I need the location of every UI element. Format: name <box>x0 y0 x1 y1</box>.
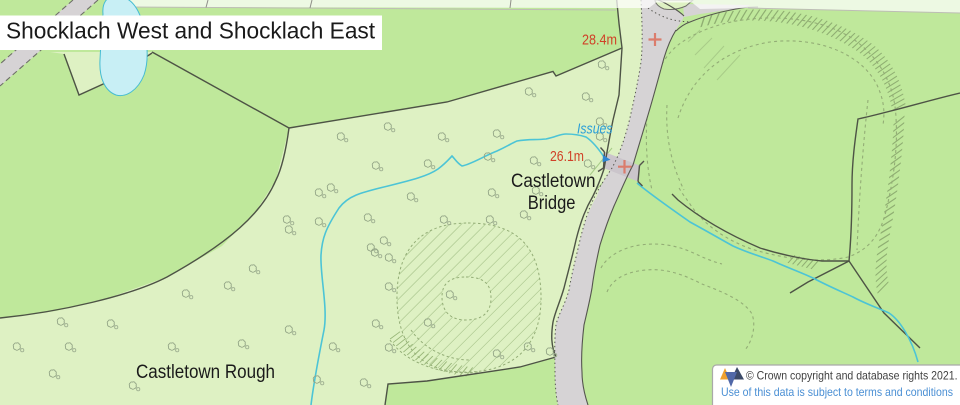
svg-text:Issues: Issues <box>577 121 613 138</box>
svg-text:26.1m: 26.1m <box>550 148 584 165</box>
svg-text:Castletown Rough: Castletown Rough <box>136 362 275 383</box>
svg-text:Castletown: Castletown <box>511 171 596 192</box>
svg-text:Use of this data is subject to: Use of this data is subject to terms and… <box>721 385 953 399</box>
svg-text:Bridge: Bridge <box>528 193 576 214</box>
svg-text:© Crown copyright and database: © Crown copyright and database rights 20… <box>746 369 958 383</box>
svg-text:28.4m: 28.4m <box>582 32 617 49</box>
svg-text:Shocklach West and Shocklach E: Shocklach West and Shocklach East <box>6 17 376 43</box>
